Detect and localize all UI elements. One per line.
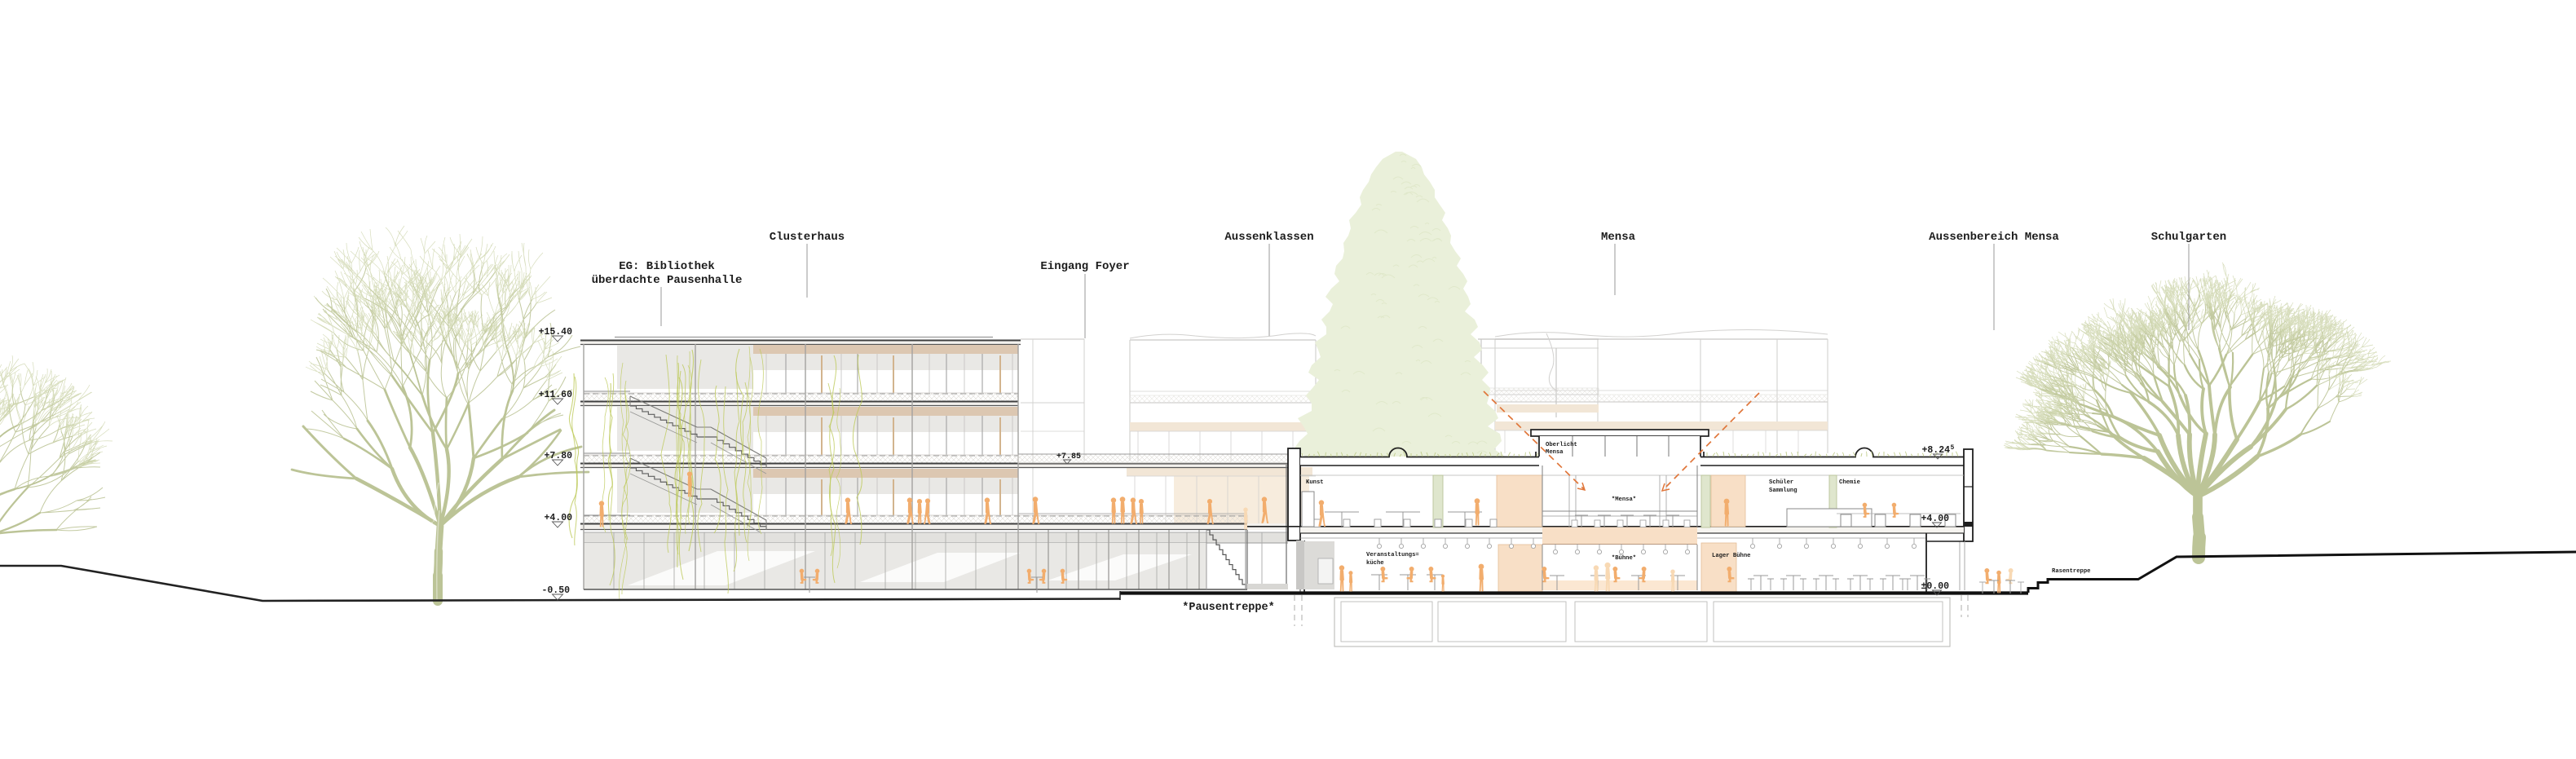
svg-text:*Pausentreppe*: *Pausentreppe* <box>1182 602 1274 614</box>
svg-text:*Bühne*: *Bühne* <box>1612 555 1636 562</box>
svg-text:Oberlicht: Oberlicht <box>1546 442 1577 448</box>
svg-text:Schulgarten: Schulgarten <box>2151 231 2226 244</box>
svg-text:Mensa: Mensa <box>1546 449 1564 456</box>
svg-text:Chemie: Chemie <box>1839 479 1860 486</box>
svg-text:Kunst: Kunst <box>1306 479 1324 486</box>
svg-text:EG: Bibliothek: EG: Bibliothek <box>619 260 715 273</box>
svg-text:Clusterhaus: Clusterhaus <box>770 231 845 244</box>
svg-text:Mensa: Mensa <box>1601 231 1636 244</box>
svg-text:Sammlung: Sammlung <box>1769 488 1797 494</box>
svg-text:Eingang Foyer: Eingang Foyer <box>1040 260 1129 273</box>
svg-text:Schüler: Schüler <box>1769 479 1793 486</box>
svg-text:Aussenklassen: Aussenklassen <box>1224 231 1313 244</box>
svg-text:*Mensa*: *Mensa* <box>1612 496 1636 503</box>
svg-text:küche: küche <box>1366 560 1384 567</box>
svg-text:Aussenbereich Mensa: Aussenbereich Mensa <box>1929 231 2059 244</box>
svg-text:Lager Bühne: Lager Bühne <box>1712 553 1750 559</box>
svg-text:Rasentreppe: Rasentreppe <box>2052 568 2090 575</box>
svg-text:5: 5 <box>1951 444 1955 452</box>
svg-text:Veranstaltungs=: Veranstaltungs= <box>1366 552 1419 558</box>
svg-text:überdachte Pausenhalle: überdachte Pausenhalle <box>592 274 743 287</box>
